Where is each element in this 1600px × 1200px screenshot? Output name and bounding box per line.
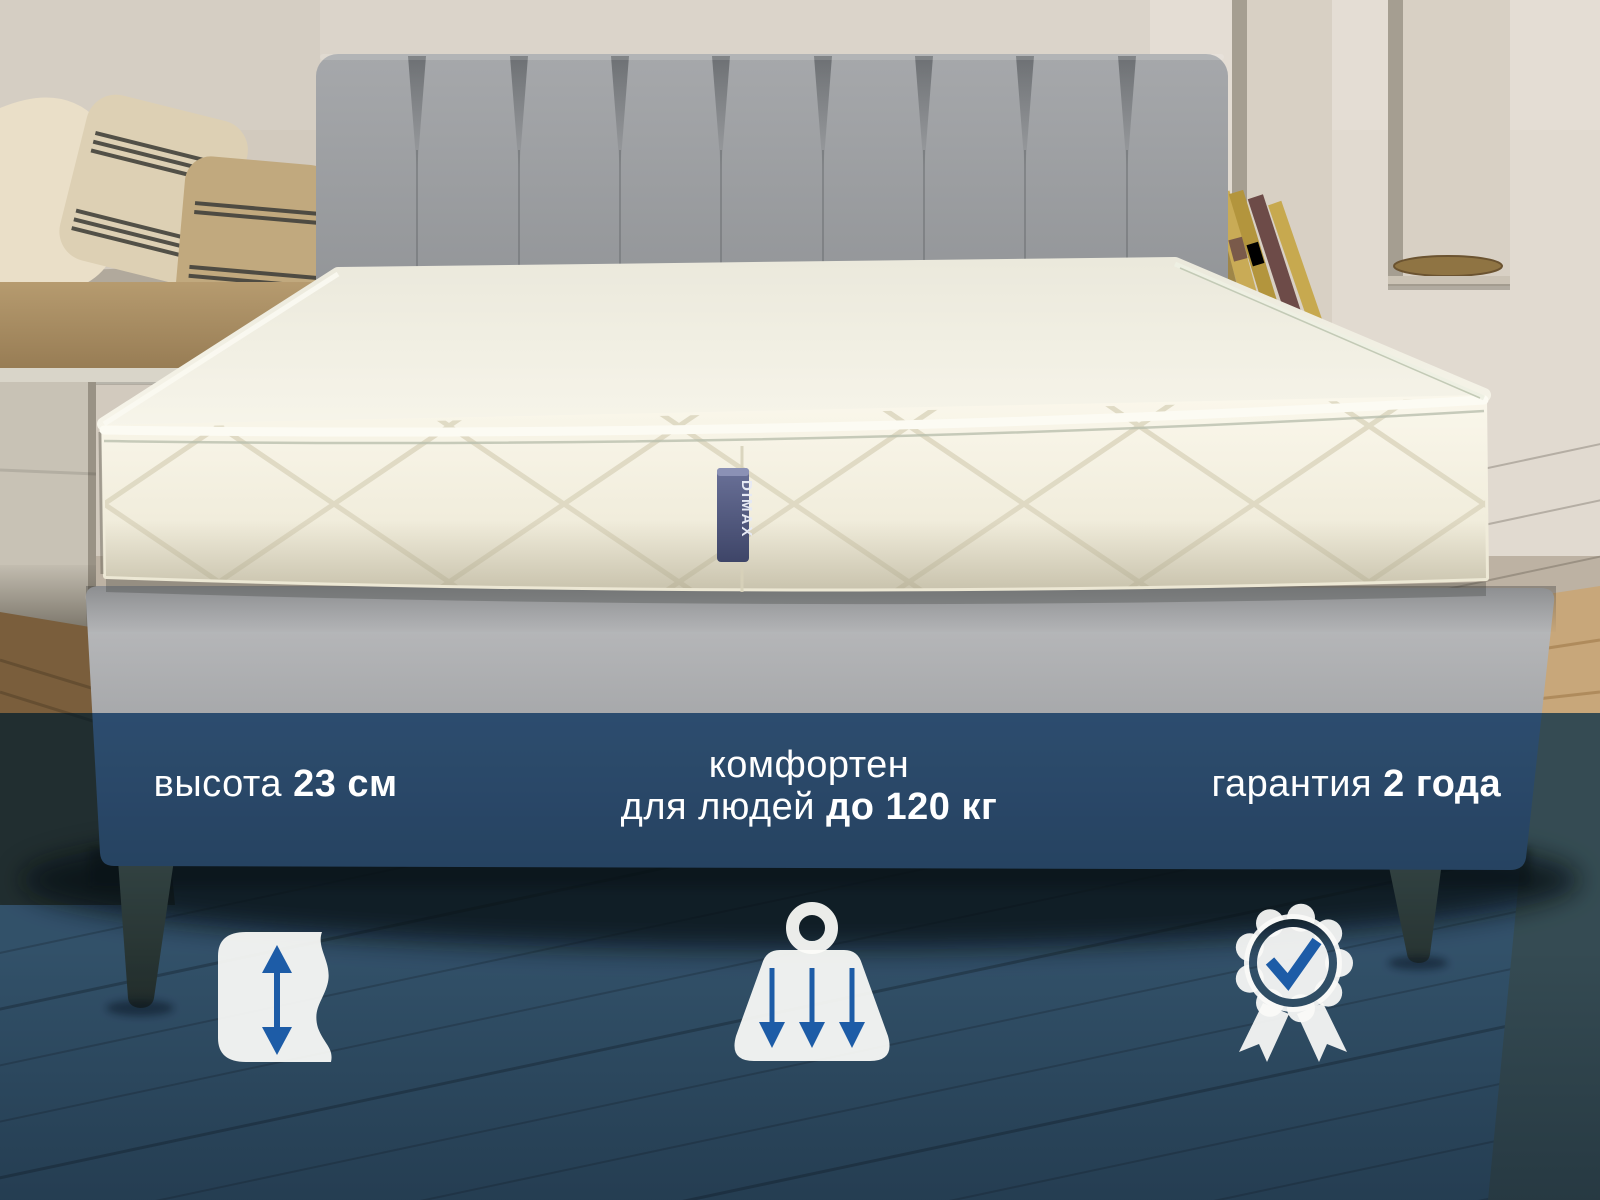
info-overlay-bottom-shade (0, 950, 1600, 1200)
mattress: DIMAX (100, 264, 1490, 600)
brand-tag-label: DIMAX (738, 480, 755, 538)
niche-wood-slice (1388, 0, 1510, 290)
mattress-product-banner: DIMAX (0, 0, 1600, 1200)
